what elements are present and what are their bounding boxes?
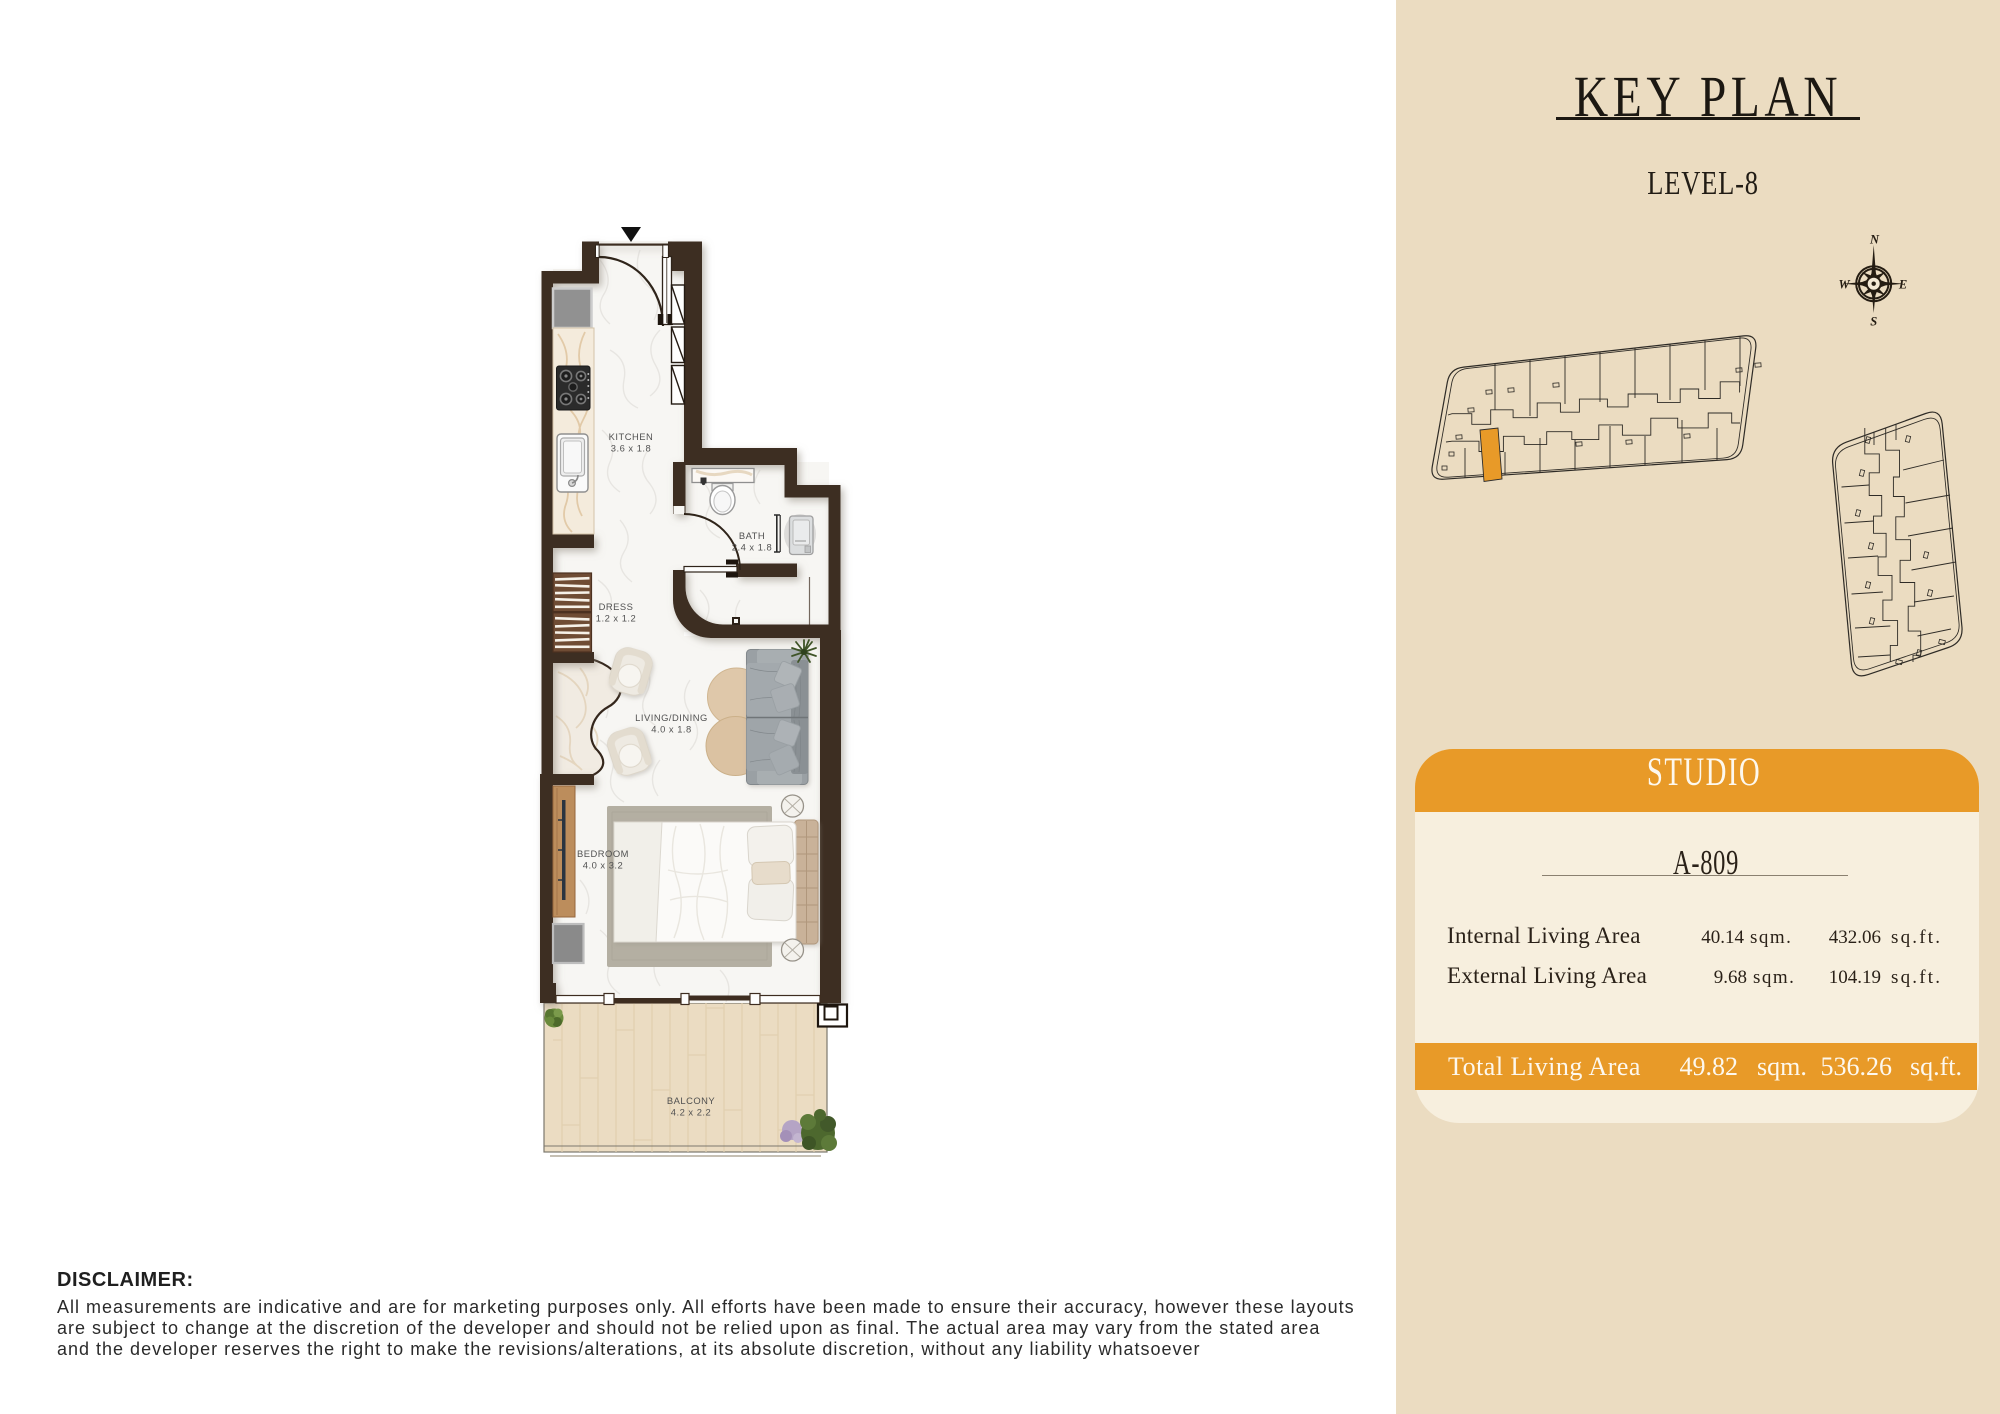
svg-text:BALCONY: BALCONY [667,1095,716,1106]
svg-text:4.0 x 3.2: 4.0 x 3.2 [583,860,623,871]
svg-text:4.0 x 1.8: 4.0 x 1.8 [651,724,691,735]
svg-text:2.4 x 1.8: 2.4 x 1.8 [732,542,772,553]
svg-text:BEDROOM: BEDROOM [577,848,629,859]
svg-text:LIVING/DINING: LIVING/DINING [635,712,708,723]
svg-text:N: N [1869,233,1880,247]
svg-text:DRESS: DRESS [599,601,634,612]
svg-text:KITCHEN: KITCHEN [609,431,654,442]
svg-text:BATH: BATH [739,530,765,541]
svg-text:1.2 x 1.2: 1.2 x 1.2 [596,613,636,624]
svg-text:W: W [1838,278,1850,292]
svg-text:E: E [1898,278,1907,292]
svg-text:4.2 x 2.2: 4.2 x 2.2 [671,1107,711,1118]
svg-text:3.6 x 1.8: 3.6 x 1.8 [611,443,651,454]
